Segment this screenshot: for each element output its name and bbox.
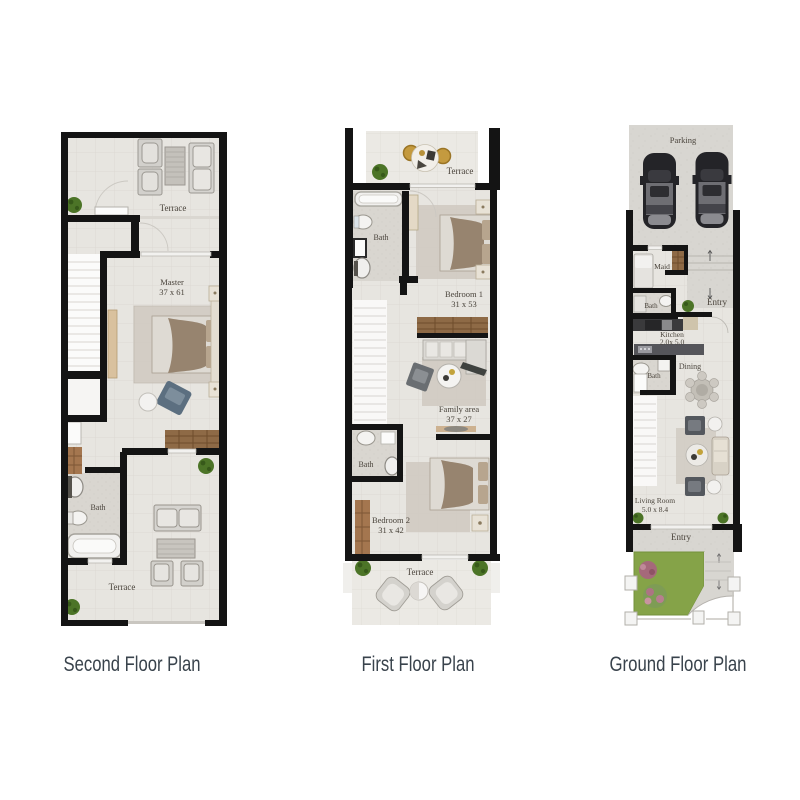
svg-text:37 x 27: 37 x 27 — [446, 414, 472, 424]
svg-text:Bedroom 1: Bedroom 1 — [445, 289, 483, 299]
svg-text:2.0x 5.0: 2.0x 5.0 — [660, 338, 685, 347]
svg-text:31 x 42: 31 x 42 — [378, 525, 404, 535]
svg-text:31 x 53: 31 x 53 — [451, 299, 477, 309]
svg-text:37 x 61: 37 x 61 — [159, 287, 185, 297]
svg-text:Second Floor Plan: Second Floor Plan — [64, 653, 201, 676]
svg-text:5.0 x 8.4: 5.0 x 8.4 — [642, 505, 669, 514]
svg-text:Maid: Maid — [654, 262, 670, 271]
svg-text:Dining: Dining — [679, 362, 701, 371]
svg-text:First Floor Plan: First Floor Plan — [362, 653, 475, 676]
svg-text:Parking: Parking — [670, 135, 697, 145]
svg-text:Entry: Entry — [707, 297, 727, 307]
svg-text:Bath: Bath — [647, 372, 661, 380]
svg-text:Entry: Entry — [671, 532, 691, 542]
svg-text:Bath: Bath — [644, 302, 658, 310]
svg-text:Bath: Bath — [90, 503, 105, 512]
svg-text:Terrace: Terrace — [160, 203, 187, 213]
svg-text:Living Room: Living Room — [635, 496, 675, 505]
svg-text:Terrace: Terrace — [447, 166, 474, 176]
svg-text:Ground Floor Plan: Ground Floor Plan — [610, 653, 747, 676]
svg-text:Master: Master — [160, 277, 184, 287]
svg-text:Bath: Bath — [373, 233, 388, 242]
svg-text:Terrace: Terrace — [407, 567, 434, 577]
svg-text:Bedroom 2: Bedroom 2 — [372, 515, 410, 525]
svg-text:Family area: Family area — [439, 404, 480, 414]
svg-text:Bath: Bath — [358, 460, 373, 469]
svg-text:Terrace: Terrace — [109, 582, 136, 592]
